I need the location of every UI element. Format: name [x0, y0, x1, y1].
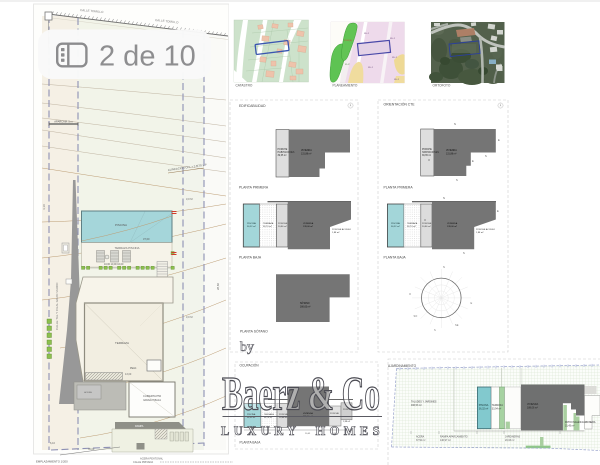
svg-text:by: by — [240, 340, 254, 355]
svg-text:VIVIENDA: VIVIENDA — [446, 149, 457, 152]
svg-text:139,06 m²: 139,06 m² — [447, 225, 457, 228]
svg-text:PISCINA: PISCINA — [247, 222, 256, 225]
svg-text:E: E — [498, 138, 500, 142]
svg-text:PELD.: PELD. — [130, 367, 137, 370]
svg-text:PISCINA: PISCINA — [391, 222, 400, 225]
svg-text:PORCHE ACCESO: PORCHE ACCESO — [476, 228, 495, 231]
svg-text:CALLE PRIVADA: CALLE PRIVADA — [133, 460, 153, 464]
svg-text:RAMPA: RAMPA — [135, 425, 144, 428]
svg-text:AJARDINAMIENTO: AJARDINAMIENTO — [388, 364, 417, 368]
svg-text:6,16: 6,16 — [50, 442, 55, 445]
svg-text:39,65 m²: 39,65 m² — [278, 154, 287, 157]
svg-text:O: O — [424, 218, 426, 222]
svg-text:LUXURY HOMES: LUXURY HOMES — [221, 424, 384, 438]
svg-text:20,03 m²: 20,03 m² — [505, 439, 515, 442]
svg-text:RU-2: RU-2 — [364, 33, 370, 35]
svg-text:36,32 m²: 36,32 m² — [247, 225, 256, 228]
svg-text:PLANTA SÓTANO: PLANTA SÓTANO — [240, 329, 268, 334]
svg-text:166,63 m²: 166,63 m² — [300, 306, 311, 309]
svg-text:S: S — [456, 178, 458, 182]
svg-text:HABITACIONES: HABITACIONES — [278, 151, 295, 154]
svg-text:E: E — [471, 301, 473, 305]
svg-text:PLANTA PRIMERA: PLANTA PRIMERA — [239, 186, 269, 190]
svg-text:RU-2: RU-2 — [394, 79, 400, 81]
svg-text:36,32 m²: 36,32 m² — [479, 408, 489, 411]
svg-text:33,94 m²: 33,94 m² — [492, 408, 502, 411]
svg-text:37,52 m²: 37,52 m² — [416, 439, 426, 442]
svg-text:S: S — [434, 328, 436, 332]
svg-text:28,86: 28,86 — [216, 283, 220, 290]
svg-text:131,88 m²: 131,88 m² — [301, 153, 312, 156]
svg-text:PISCINA: PISCINA — [115, 223, 127, 227]
svg-text:RU-2: RU-2 — [392, 57, 398, 59]
svg-text:ORTOFOTO: ORTOFOTO — [433, 84, 451, 88]
svg-text:36,74 m²: 36,74 m² — [263, 225, 272, 228]
svg-text:N: N — [454, 122, 456, 126]
svg-text:EMPLAZAMIENTO 1/200: EMPLAZAMIENTO 1/200 — [36, 460, 68, 464]
svg-text:36,32 m²: 36,32 m² — [391, 225, 400, 228]
svg-text:ZL-P: ZL-P — [345, 64, 350, 66]
svg-text:SÓTANO: SÓTANO — [300, 302, 310, 305]
svg-text:VIVIENDA: VIVIENDA — [303, 222, 314, 225]
svg-text:466,53 m²: 466,53 m² — [411, 404, 422, 407]
svg-text:GRAVA P.BAJA: GRAVA P.BAJA — [143, 398, 161, 402]
svg-text:N: N — [443, 265, 445, 269]
svg-text:20,86 m²: 20,86 m² — [422, 225, 431, 228]
svg-text:36,74 m²: 36,74 m² — [407, 225, 416, 228]
svg-text:SE: SE — [455, 323, 459, 327]
svg-text:188,06 m²: 188,06 m² — [527, 407, 538, 410]
svg-text:31,43 m²: 31,43 m² — [565, 425, 575, 428]
svg-text:35,00: 35,00 — [88, 448, 95, 451]
svg-text:S: S — [485, 154, 487, 158]
svg-text:PORCHE: PORCHE — [278, 223, 288, 225]
svg-text:SO: SO — [414, 314, 418, 318]
svg-text:3,0 M: 3,0 M — [186, 315, 193, 319]
svg-text:20,86 m²: 20,86 m² — [278, 225, 287, 228]
svg-text:140,97 m²: 140,97 m² — [440, 439, 451, 442]
svg-text:RU-2: RU-2 — [368, 67, 374, 69]
svg-text:PLANTA PRIMERA: PLANTA PRIMERA — [384, 186, 414, 190]
svg-text:PLANTA BAJA: PLANTA BAJA — [240, 441, 262, 445]
svg-text:VIVIENDA: VIVIENDA — [447, 222, 458, 225]
svg-text:E: E — [472, 159, 474, 163]
svg-text:O: O — [409, 292, 411, 296]
svg-text:VIVIENDA: VIVIENDA — [301, 149, 312, 152]
svg-text:TERRAZA PISCINA: TERRAZA PISCINA — [115, 246, 140, 250]
svg-text:139,06 m²: 139,06 m² — [303, 225, 313, 228]
svg-text:2 de 10: 2 de 10 — [99, 41, 196, 73]
svg-text:PORCHE: PORCHE — [278, 149, 288, 151]
svg-text:N: N — [443, 196, 445, 200]
svg-text:ACERA: ACERA — [84, 391, 92, 394]
svg-text:PLANTA BAJA: PLANTA BAJA — [384, 256, 407, 260]
svg-text:RU-2: RU-2 — [390, 38, 396, 40]
svg-text:PLANTA BAJA: PLANTA BAJA — [239, 256, 262, 260]
svg-text:EDIFICABILIDAD: EDIFICABILIDAD — [239, 104, 266, 108]
svg-text:ZV-R(S): ZV-R(S) — [344, 40, 352, 42]
svg-text:131,88 m²: 131,88 m² — [446, 153, 457, 156]
svg-text:E: E — [497, 209, 499, 213]
svg-text:1,88 m²: 1,88 m² — [332, 231, 340, 234]
svg-text:13,00: 13,00 — [125, 373, 132, 376]
svg-text:37,00: 37,00 — [143, 237, 150, 241]
svg-text:ACERA PEATONAL: ACERA PEATONAL — [140, 457, 164, 461]
svg-text:O: O — [428, 158, 430, 162]
svg-text:10,00 10,00 10,00: 10,00 10,00 10,00 — [104, 263, 124, 266]
svg-text:PLANEAMIENTO: PLANEAMIENTO — [333, 84, 358, 88]
svg-text:PORCHE ACCESO: PORCHE ACCESO — [332, 228, 351, 231]
svg-text:TERRAZA: TERRAZA — [263, 222, 274, 225]
svg-text:4,10: 4,10 — [42, 204, 46, 210]
svg-text:CATASTRO: CATASTRO — [236, 84, 253, 88]
svg-text:TERRAZA: TERRAZA — [407, 222, 418, 225]
svg-text:HABITACIONES: HABITACIONES — [422, 151, 439, 154]
svg-text:ORIENTACIÓN CTE: ORIENTACIÓN CTE — [384, 102, 416, 107]
svg-text:PORCHE: PORCHE — [422, 149, 432, 151]
svg-text:1,88 m²: 1,88 m² — [476, 231, 484, 234]
svg-text:39,65 m²: 39,65 m² — [422, 154, 431, 157]
svg-text:Baerz & Co: Baerz & Co — [222, 368, 380, 421]
svg-text:TERRAZA: TERRAZA — [115, 341, 129, 345]
svg-text:APARCAM. 5 m: APARCAM. 5 m — [54, 119, 72, 123]
svg-text:S: S — [463, 251, 465, 255]
svg-text:PORCHE: PORCHE — [422, 223, 432, 225]
svg-text:CALLE TAL Y CUAL GRAN VIARIO: CALLE TAL Y CUAL GRAN VIARIO — [55, 282, 59, 330]
svg-text:3,0 M: 3,0 M — [186, 197, 193, 201]
